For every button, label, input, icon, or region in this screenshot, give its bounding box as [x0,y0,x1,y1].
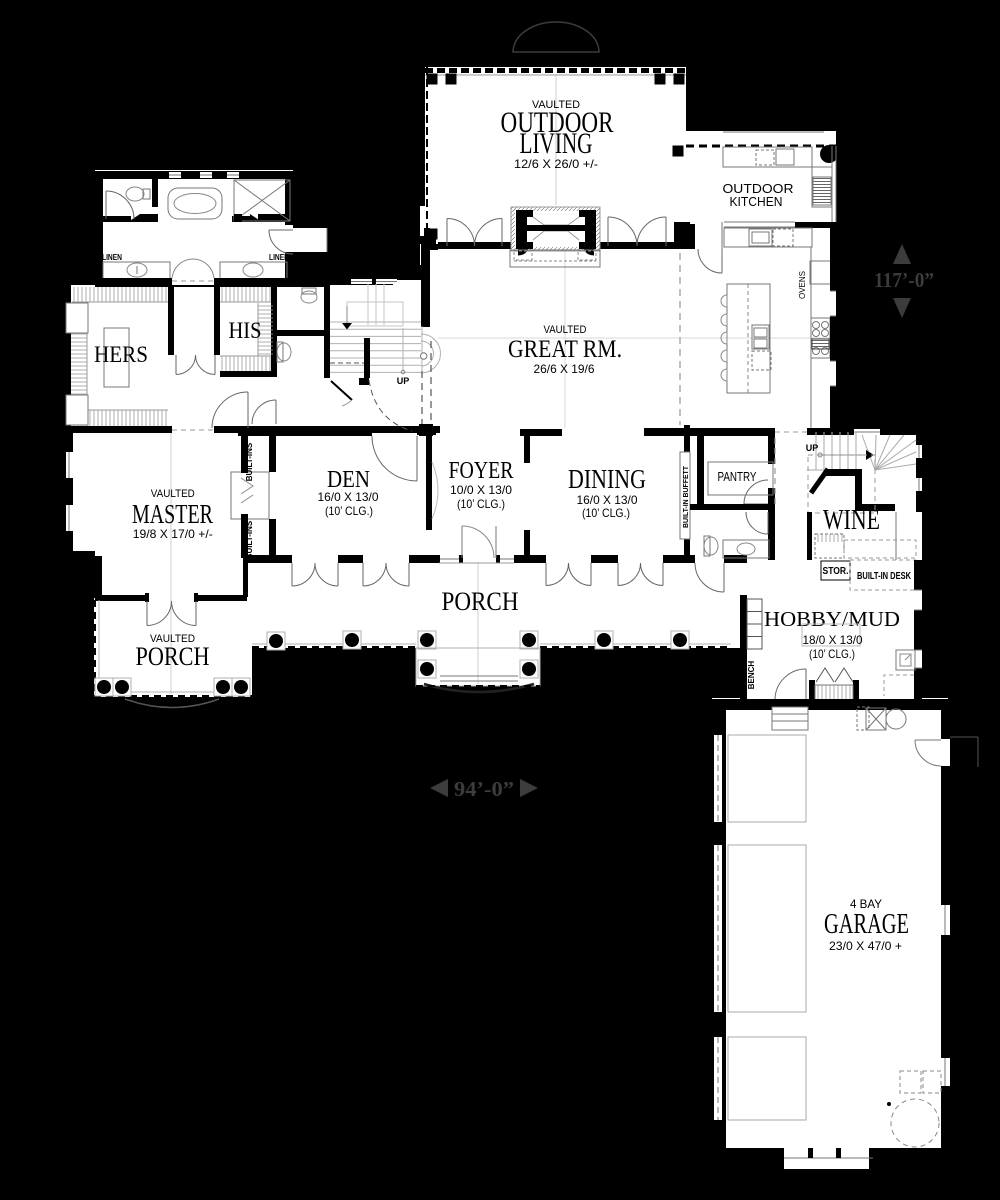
svg-text:(10’ CLG.): (10’ CLG.) [325,504,373,518]
svg-text:OVENS: OVENS [798,271,807,299]
svg-text:BUILT-INS: BUILT-INS [245,442,254,481]
svg-text:(10’ CLG.): (10’ CLG.) [457,497,505,511]
svg-text:PORCH: PORCH [442,587,519,616]
svg-text:16/0 X 13/0: 16/0 X 13/0 [318,490,379,504]
svg-text:PORCH: PORCH [136,642,210,671]
svg-text:HERS: HERS [94,342,148,367]
svg-text:GREAT RM.: GREAT RM. [508,336,622,363]
svg-text:VAULTED: VAULTED [544,324,587,336]
svg-text:STOR.: STOR. [823,566,849,577]
svg-text:UP: UP [397,376,410,386]
svg-text:BUILT-INS: BUILT-INS [245,520,254,559]
svg-text:117’-0”: 117’-0” [874,268,934,292]
svg-text:HIS: HIS [229,318,262,343]
svg-text:DINING: DINING [568,464,646,494]
svg-text:FOYER: FOYER [449,458,514,484]
svg-text:19/8 X 17/0 +/-: 19/8 X 17/0 +/- [133,527,213,541]
svg-text:HOBBY/MUD: HOBBY/MUD [764,607,900,631]
svg-text:26/6 X 19/6: 26/6 X 19/6 [534,362,595,376]
svg-text:PANTRY: PANTRY [718,469,757,484]
svg-text:LINEN: LINEN [102,253,122,262]
svg-text:LINEN: LINEN [269,253,289,262]
svg-text:BENCH: BENCH [747,661,756,690]
svg-text:10/0 X 13/0: 10/0 X 13/0 [450,483,512,497]
svg-text:94’-0”: 94’-0” [454,777,514,801]
svg-text:LIVING: LIVING [520,127,593,160]
svg-text:UP: UP [806,443,819,453]
svg-text:BUILT-IN BUFFETT: BUILT-IN BUFFETT [681,466,690,528]
svg-text:(10’ CLG.): (10’ CLG.) [809,647,855,661]
svg-text:GARAGE: GARAGE [824,908,909,940]
svg-text:MASTER: MASTER [132,499,213,529]
svg-text:16/0 X 13/0: 16/0 X 13/0 [577,493,638,507]
svg-text:KITCHEN: KITCHEN [730,194,783,209]
svg-text:WINE: WINE [823,505,880,536]
svg-text:12/6 X 26/0 +/-: 12/6 X 26/0 +/- [514,157,598,171]
svg-text:23/0 X 47/0 +: 23/0 X 47/0 + [829,939,902,953]
svg-text:(10’ CLG.): (10’ CLG.) [582,506,630,520]
svg-text:BUILT-IN DESK: BUILT-IN DESK [857,571,912,582]
svg-text:18/0 X 13/0: 18/0 X 13/0 [803,633,863,647]
